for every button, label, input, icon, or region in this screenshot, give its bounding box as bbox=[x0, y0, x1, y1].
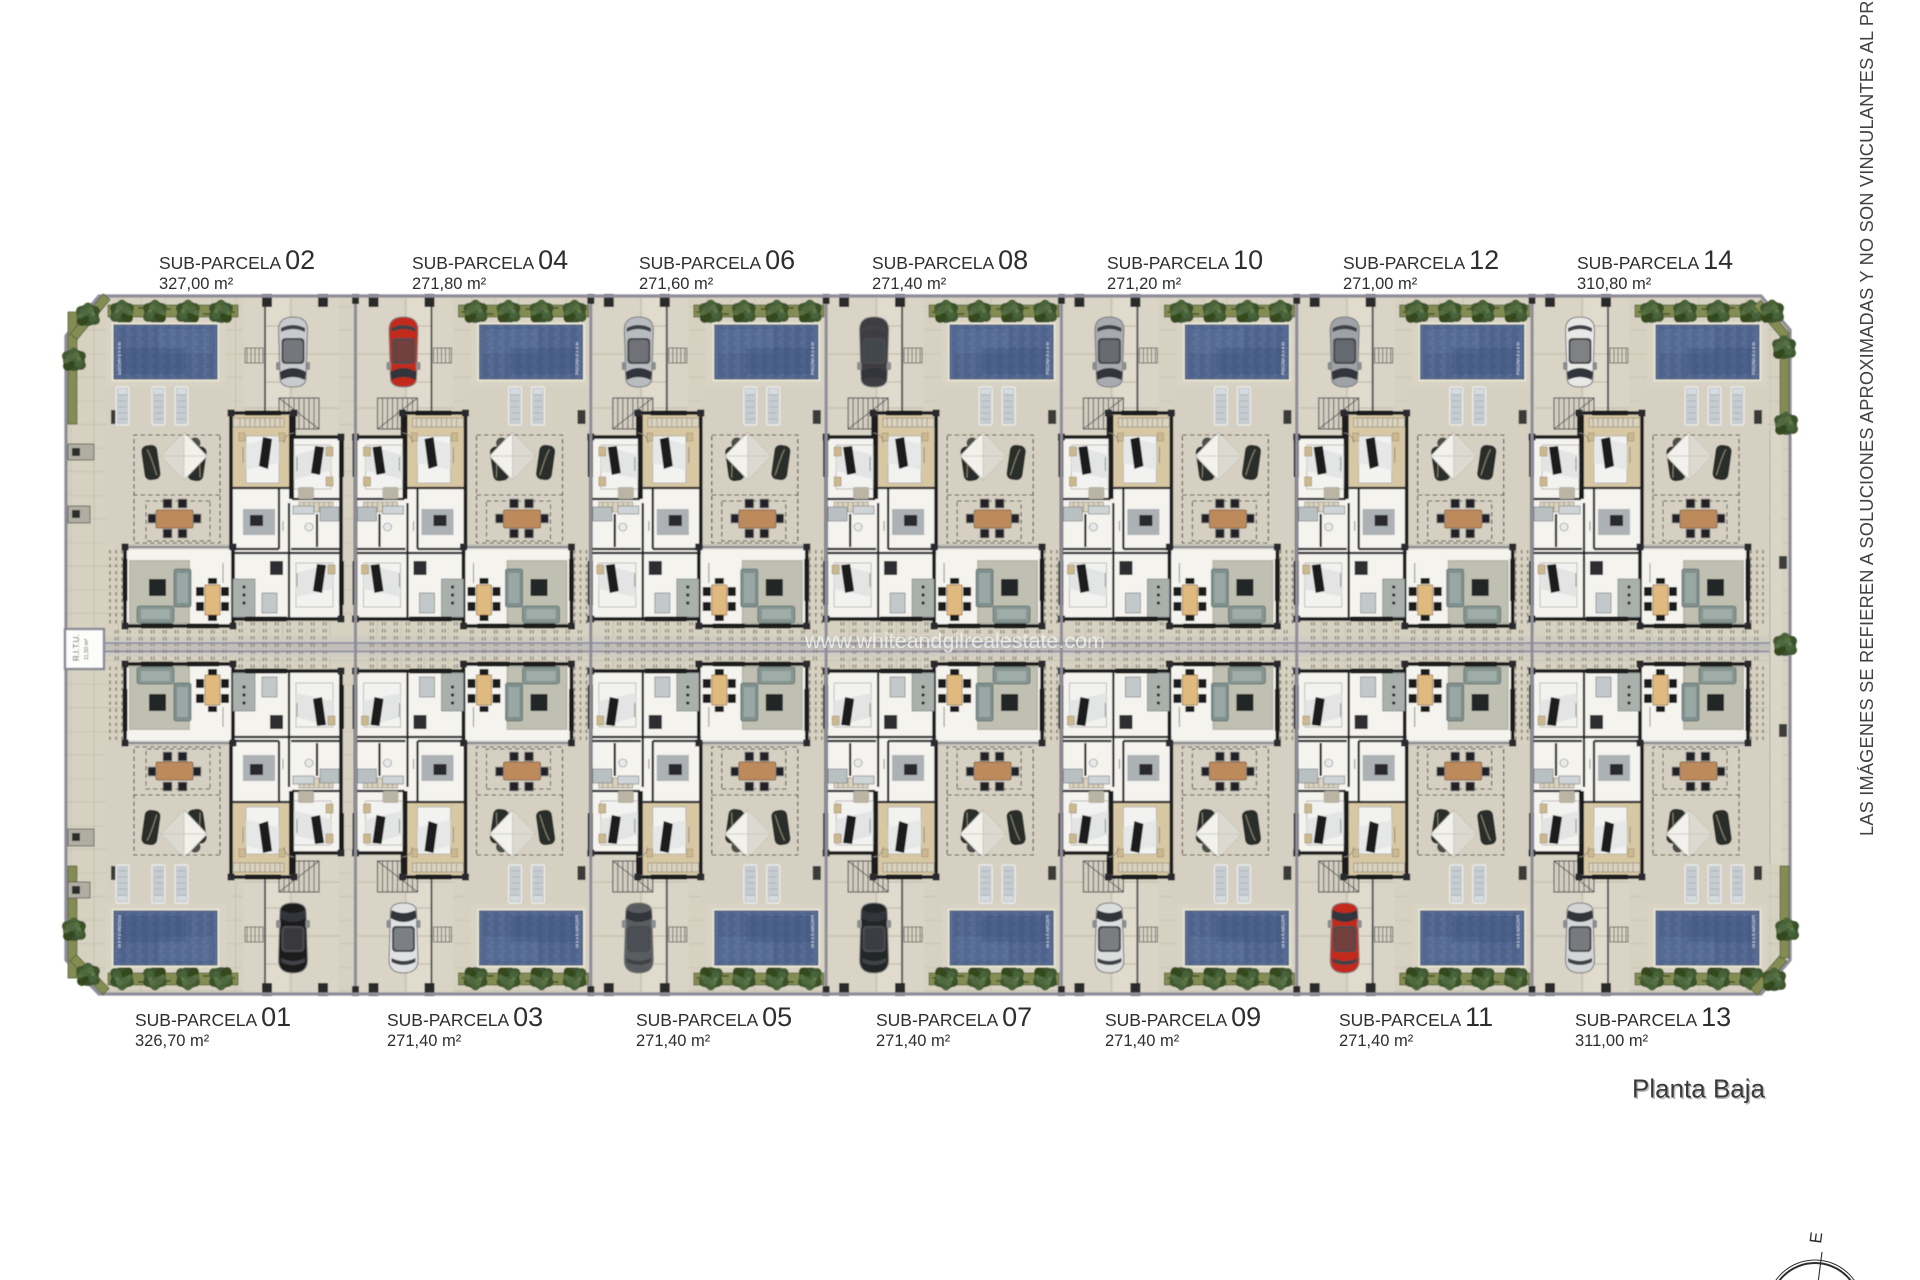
svg-text:271,20 m²: 271,20 m² bbox=[1107, 275, 1182, 293]
svg-text:271,00 m²: 271,00 m² bbox=[1343, 275, 1418, 293]
svg-text:326,70 m²: 326,70 m² bbox=[135, 1032, 210, 1050]
svg-text:271,40 m²: 271,40 m² bbox=[872, 275, 947, 293]
svg-text:11,50 m²: 11,50 m² bbox=[84, 639, 90, 660]
svg-text:271,40 m²: 271,40 m² bbox=[1105, 1032, 1180, 1050]
svg-text:310,80 m²: 310,80 m² bbox=[1577, 275, 1652, 293]
svg-text:327,00 m²: 327,00 m² bbox=[159, 275, 234, 293]
svg-text:271,40 m²: 271,40 m² bbox=[876, 1032, 951, 1050]
svg-text:www.whiteandgilrealestate.com: www.whiteandgilrealestate.com bbox=[804, 629, 1105, 653]
svg-text:E: E bbox=[1806, 1231, 1826, 1245]
svg-text:LAS IMÁGENES SE REFIEREN A SOL: LAS IMÁGENES SE REFIEREN A SOLUCIONES AP… bbox=[1857, 0, 1877, 836]
svg-text:271,40 m²: 271,40 m² bbox=[387, 1032, 462, 1050]
svg-text:271,40 m²: 271,40 m² bbox=[636, 1032, 711, 1050]
svg-text:271,80 m²: 271,80 m² bbox=[412, 275, 487, 293]
svg-text:271,60 m²: 271,60 m² bbox=[639, 275, 714, 293]
svg-text:311,00 m²: 311,00 m² bbox=[1575, 1032, 1649, 1050]
svg-text:R.I.T.U.: R.I.T.U. bbox=[72, 634, 81, 661]
svg-text:Planta Baja: Planta Baja bbox=[1632, 1074, 1766, 1104]
svg-text:271,40 m²: 271,40 m² bbox=[1339, 1032, 1414, 1050]
